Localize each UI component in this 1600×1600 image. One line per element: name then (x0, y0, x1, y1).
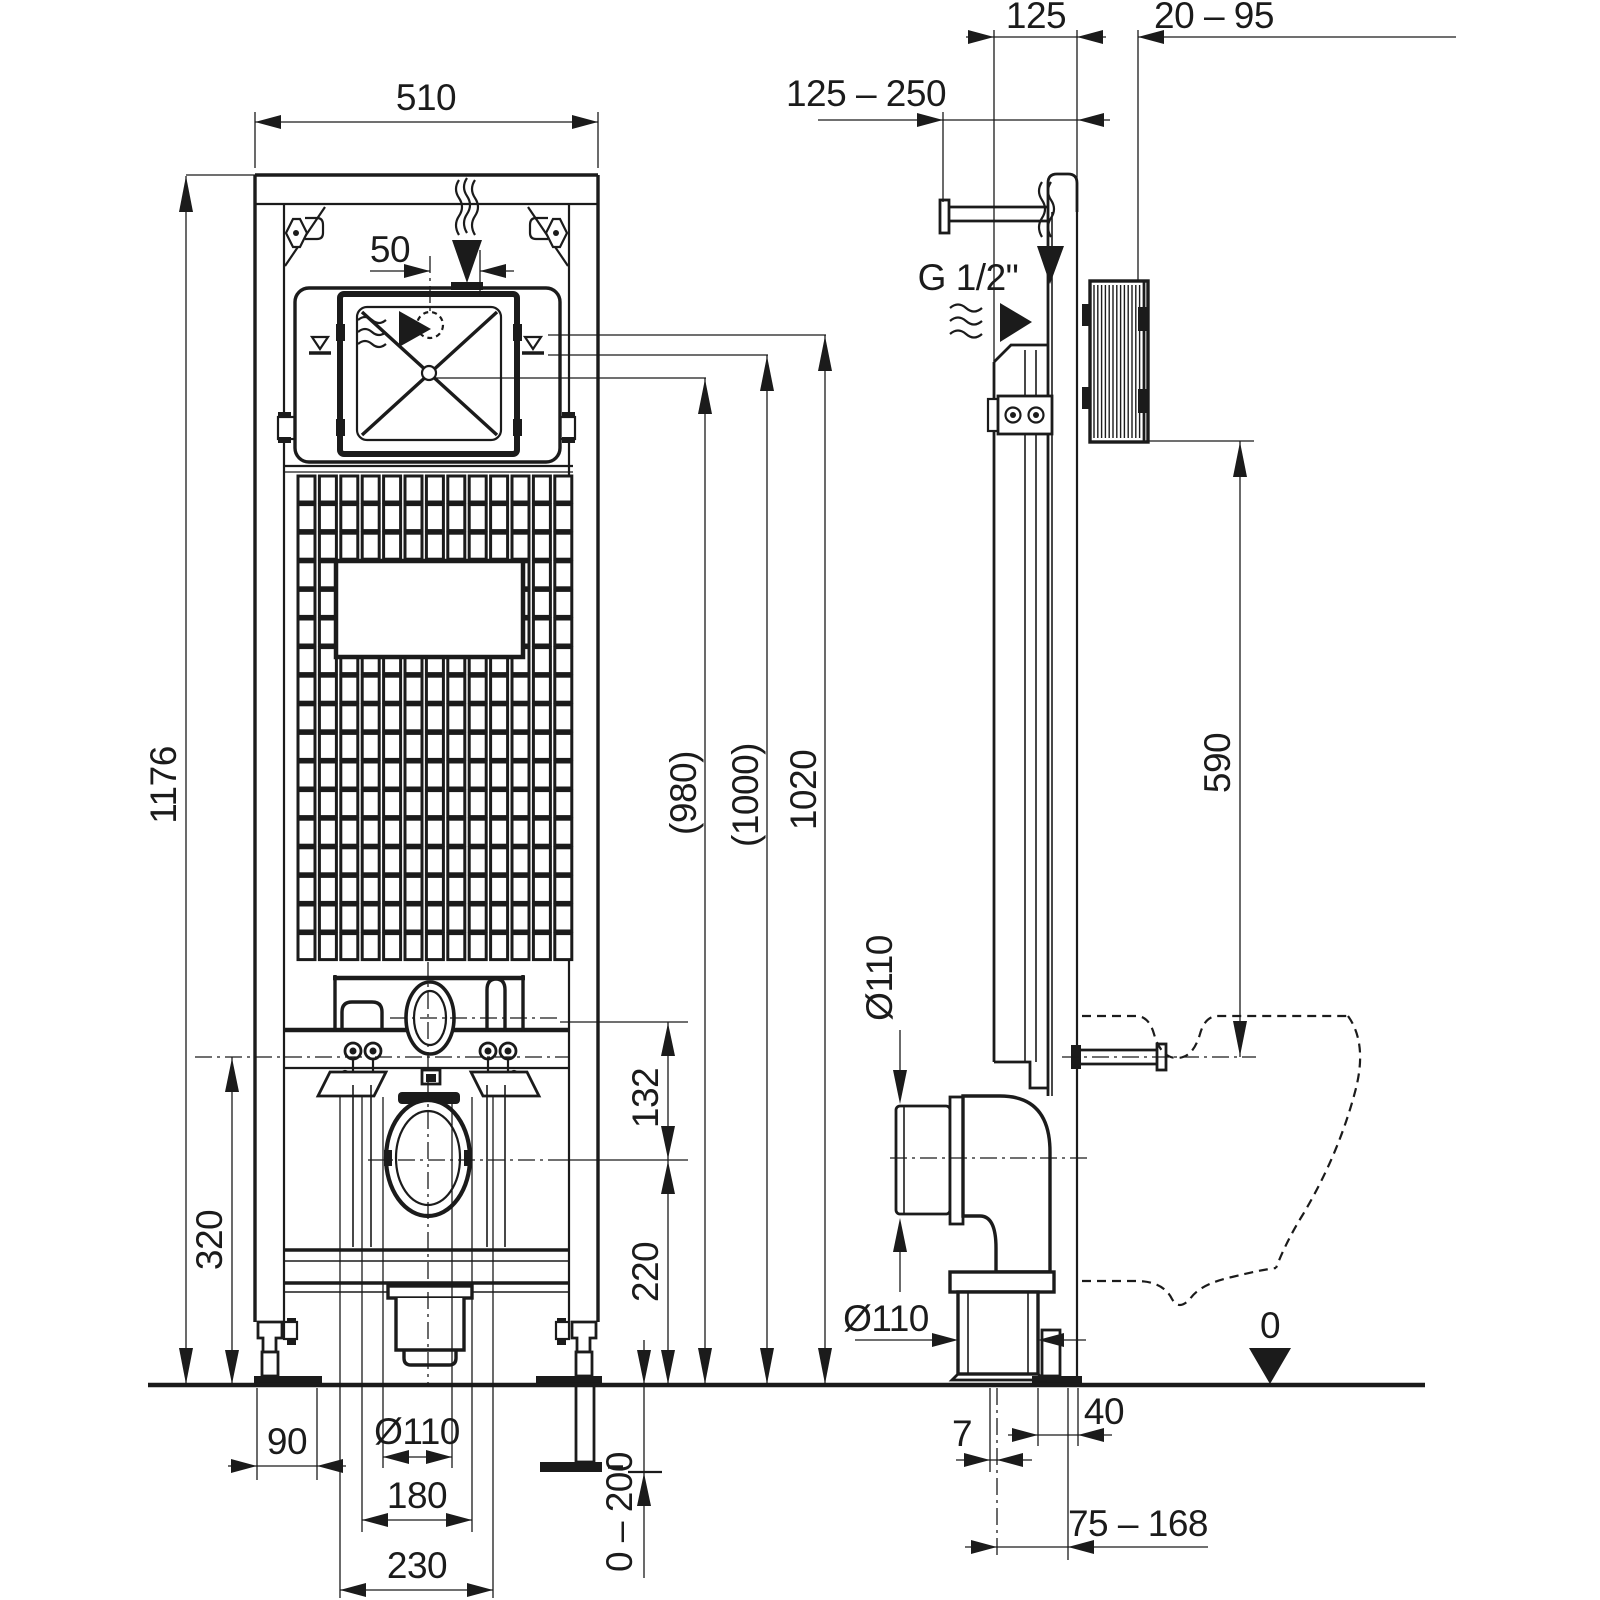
technical-drawing-page: 510 50 1176 (980) (0, 0, 1600, 1600)
dim-50-label: 50 (370, 229, 410, 270)
drain-socket (396, 1298, 464, 1350)
floor-datum-label: 0 (1260, 1305, 1280, 1346)
floor-datum: 0 (1249, 1305, 1291, 1384)
cistern-inspection-box (295, 178, 560, 462)
dim-o110-side-label: Ø110 (859, 935, 900, 1021)
dim-40: 40 (1008, 1391, 1124, 1442)
dim-125-label: 125 (1006, 0, 1066, 36)
inspection-cross-hub (422, 366, 436, 380)
dim-wall-range: 20 – 95 (1138, 0, 1456, 281)
thread-label: G 1/2" (918, 257, 1019, 298)
installation-frame-drawing: 510 50 1176 (980) (0, 0, 1600, 1600)
dim-590: 590 (1146, 441, 1254, 1057)
dim-o110-front-label: Ø110 (374, 1411, 460, 1452)
dim-40-label: 40 (1084, 1391, 1124, 1432)
wall-bracket (988, 396, 1052, 434)
water-inlet-arrow (451, 178, 483, 290)
dim-180-label: 180 (387, 1475, 447, 1516)
dim-320: 320 (189, 1057, 239, 1384)
dim-590-label: 590 (1197, 733, 1238, 793)
dim-1000-label: (1000) (725, 743, 766, 847)
dim-0-200-label: 0 – 200 (599, 1452, 640, 1572)
dim-980-label: (980) (663, 751, 704, 835)
dim-inlet-50: 50 (370, 229, 514, 296)
flush-plate-window (336, 561, 523, 657)
dim-90: 90 (228, 1421, 346, 1473)
dim-90-label: 90 (267, 1421, 307, 1462)
rail-clip-lower-left (284, 1318, 297, 1345)
dim-230: 230 (340, 1545, 493, 1597)
mount-pin (487, 979, 505, 1032)
dim-125-250-label: 125 – 250 (786, 73, 946, 114)
dim-foot-adjust: 0 – 200 (599, 1340, 662, 1578)
foot-extension-plate (540, 1462, 602, 1472)
rail-clip-upper-left (278, 412, 295, 443)
dim-7-label: 7 (952, 1413, 972, 1454)
dim-510-label: 510 (396, 77, 456, 118)
perforated-plate (284, 466, 573, 960)
pipe-socket (950, 1272, 1054, 1292)
dim-75-168-label: 75 – 168 (1068, 1503, 1208, 1544)
dim-320-label: 320 (189, 1210, 230, 1270)
wc-bowl-outline (1082, 1016, 1360, 1305)
dim-height-1176: 1176 (143, 175, 257, 1384)
dim-230-label: 230 (387, 1545, 447, 1586)
dim-132-label: 132 (625, 1068, 666, 1128)
drain-assembly (284, 1100, 569, 1365)
dim-7: 7 (952, 1413, 1032, 1467)
dim-drain-dia-front: Ø110 (374, 1411, 460, 1464)
dim-1020-label: 1020 (783, 750, 824, 830)
dim-supply-range: 125 – 250 (786, 73, 1110, 202)
side-view (890, 174, 1360, 1385)
drain-socket-flange (388, 1286, 472, 1298)
dim-220-label: 220 (625, 1242, 666, 1302)
rail-clip-lower-right (556, 1318, 569, 1345)
supply-pipe-flange (940, 200, 949, 233)
mount-bracket (342, 1002, 382, 1032)
wing-plate-left (318, 1072, 386, 1096)
perforation-grid (298, 476, 572, 960)
dim-180: 180 (362, 1475, 472, 1527)
dim-width-510: 510 (255, 77, 598, 168)
dim-20-95-label: 20 – 95 (1154, 0, 1274, 36)
dim-o110-bottom-label: Ø110 (843, 1298, 929, 1339)
front-view (195, 175, 623, 1472)
dim-1176-label: 1176 (143, 746, 184, 824)
foot-extension-shaft (576, 1385, 594, 1462)
dim-outlet-range: 75 – 168 (965, 1503, 1208, 1554)
protective-box (1082, 281, 1148, 442)
